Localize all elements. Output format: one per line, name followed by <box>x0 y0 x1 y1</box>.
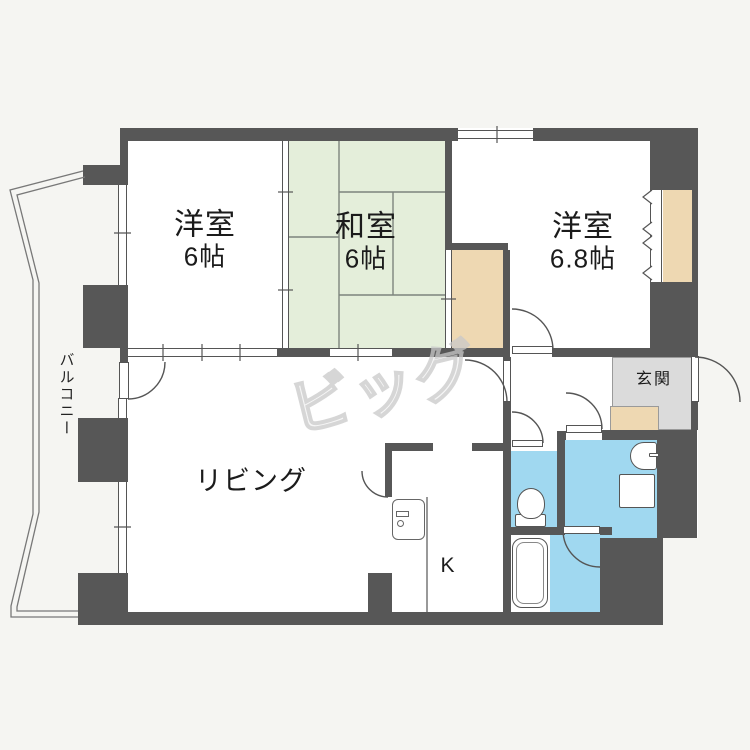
window <box>118 185 127 285</box>
wall <box>503 535 511 612</box>
refrigerator-knob-icon <box>397 520 404 527</box>
refrigerator-handle-icon <box>396 511 409 517</box>
closet-folding-door <box>650 190 662 282</box>
living-hall-door <box>503 360 511 402</box>
sliding-door <box>128 348 277 357</box>
balcony-door <box>119 362 129 399</box>
wall <box>600 527 612 535</box>
floor-plan: ビッグ 洋室 6帖 和室 6帖 洋室 6.8帖 リビング K 玄関 バルコニー <box>0 0 750 750</box>
wall <box>368 573 392 612</box>
refrigerator-icon <box>392 499 425 540</box>
room-name: 和室 <box>335 211 397 245</box>
entrance-door <box>691 356 699 402</box>
room-name: 洋室 <box>550 211 616 245</box>
room-size: 6帖 <box>174 242 236 271</box>
room-label-western2: 洋室 6.8帖 <box>550 211 616 274</box>
wall <box>650 282 698 357</box>
wall <box>503 451 511 535</box>
room-label-japanese: 和室 6帖 <box>335 211 397 274</box>
wall <box>602 430 697 440</box>
bathroom-wet-floor <box>550 535 602 612</box>
room-label-balcony: バルコニー <box>56 352 77 437</box>
wall <box>503 250 510 348</box>
wall <box>503 401 511 443</box>
wall <box>385 451 392 497</box>
room-label-kitchen: K <box>440 554 455 578</box>
wall <box>557 431 566 440</box>
wall <box>445 243 508 250</box>
wall <box>120 128 458 141</box>
room-name: 洋室 <box>174 209 236 243</box>
toilet-icon <box>517 488 545 519</box>
entrance-step <box>610 406 659 432</box>
wall <box>78 573 128 625</box>
western2-closet <box>663 190 692 282</box>
room-label-entrance: 玄関 <box>636 371 672 389</box>
wall <box>83 285 128 348</box>
bathtub-icon <box>516 542 544 604</box>
wall <box>503 527 563 535</box>
room-size: 6帖 <box>335 244 397 273</box>
wall <box>557 433 565 535</box>
wall <box>692 190 698 282</box>
sink-faucet-icon <box>649 453 659 457</box>
fusuma-partition <box>282 141 289 348</box>
wall <box>445 141 452 243</box>
wall <box>472 443 511 451</box>
wall <box>78 418 128 482</box>
window <box>458 130 533 139</box>
wall <box>691 402 698 430</box>
room-size: 6.8帖 <box>550 244 616 273</box>
room-label-living: リビング <box>195 466 307 496</box>
wall <box>127 612 663 625</box>
toilet-door <box>512 440 543 447</box>
wall <box>552 348 698 357</box>
wall <box>83 165 128 185</box>
western2-door <box>512 346 553 354</box>
window <box>118 398 127 418</box>
wall <box>650 128 698 190</box>
window <box>118 482 127 573</box>
room-label-western1: 洋室 6帖 <box>174 209 236 272</box>
wall <box>657 440 697 538</box>
washing-machine-icon <box>619 474 655 508</box>
wall <box>600 538 663 625</box>
wall <box>120 348 128 362</box>
wall <box>385 443 433 451</box>
washroom-door <box>566 425 602 433</box>
door-swing <box>695 357 740 402</box>
bathroom-door <box>563 526 600 534</box>
